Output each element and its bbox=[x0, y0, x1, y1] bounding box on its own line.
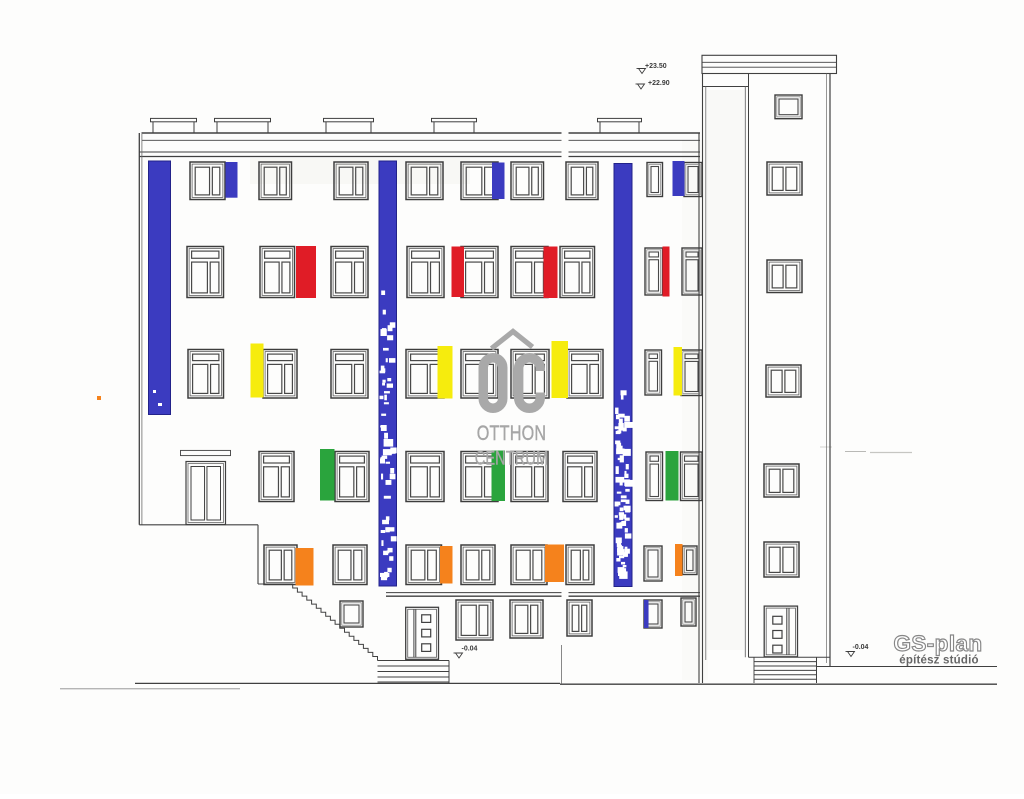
svg-text:-0.04: -0.04 bbox=[853, 644, 869, 651]
svg-text:OTTHON: OTTHON bbox=[477, 422, 547, 446]
svg-text:+23.50: +23.50 bbox=[645, 63, 667, 70]
svg-text:+22.90: +22.90 bbox=[648, 80, 670, 87]
svg-text:-0.04: -0.04 bbox=[462, 646, 478, 653]
svg-text:GS-plan: GS-plan bbox=[893, 631, 982, 656]
svg-text:építész stúdió: építész stúdió bbox=[899, 655, 978, 667]
svg-text:CENTRUM: CENTRUM bbox=[475, 448, 549, 469]
